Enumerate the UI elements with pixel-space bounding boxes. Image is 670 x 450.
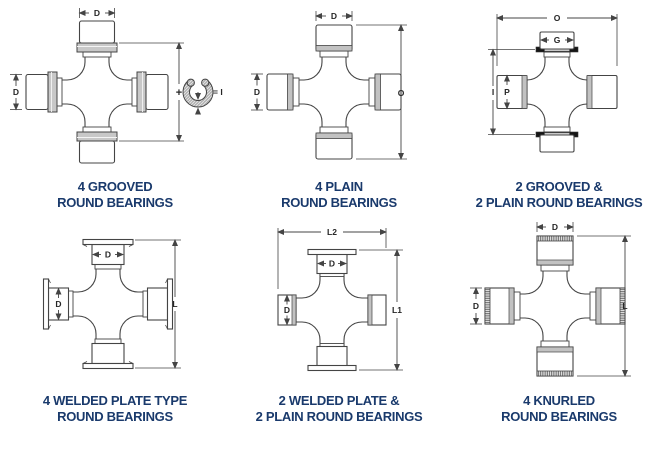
diagram-2-grooved-2-plain: O G I P 2 GROOVED & 2 PLAIN ROUND BEARIN… [448,4,670,210]
caption-line-2: 2 PLAIN ROUND BEARINGS [448,195,670,211]
dim-label-l2: L2 [327,227,337,237]
diagram-caption: 4 GROOVED ROUND BEARINGS [2,179,228,210]
diagram-caption: 2 WELDED PLATE & 2 PLAIN ROUND BEARINGS [228,393,450,424]
bearing-arm-left [26,72,62,112]
diagram-caption: 4 PLAIN ROUND BEARINGS [228,179,450,210]
dim-top-d: D [316,11,352,21]
caption-line-2: 2 PLAIN ROUND BEARINGS [228,409,450,425]
diagram-4-grooved: D D + = I 4 GROOVED ROUND BEARINGS [2,4,228,210]
caption-line-1: 2 GROOVED & [448,179,670,195]
dim-left-d: D [251,74,263,110]
dim-label-d-top: D [331,11,337,21]
u-joint-drawing-plain: D D O [229,4,449,172]
dim-label-i: I [492,87,494,97]
dim-label-o: O [554,13,561,23]
dim-label-p: P [504,87,510,97]
diagram-sheet: { "colors": { "caption": "#1a3a6c", "out… [0,0,670,450]
diagram-4-knurled: D D L 4 KNURLED ROUND BEARINGS [448,218,670,424]
bearing-arm-bottom [537,341,573,376]
u-joint-drawing-grooved-plain: O G I P [449,4,669,172]
bearing-arm-right [143,279,173,329]
dim-left-d: D [470,288,482,324]
u-joint-cross [485,236,625,376]
dim-label-d-top: D [329,259,335,269]
bearing-arm-right [590,288,625,324]
bearing-arm-right [132,72,168,112]
bearing-arm-left-plain [497,76,527,109]
bearing-arm-top [537,236,573,271]
dim-label-d-top: D [94,8,100,18]
diagram-caption: 4 KNURLED ROUND BEARINGS [448,393,670,424]
caption-line-1: 4 WELDED PLATE TYPE [2,393,228,409]
dim-label-plus: + [176,87,182,99]
dim-top-d: D [537,222,573,232]
u-joint-drawing-grooved: D D + = I [5,4,225,172]
diagram-2-welded-2-plain: L2 D D L1 2 WELDED PLATE & 2 PLAIN ROUND… [228,218,450,424]
snap-ring-icon [183,79,213,114]
dim-left-d: D [10,75,22,110]
bearing-arm-top [77,21,117,57]
u-joint-drawing-welded-plain: L2 D D L1 [229,218,449,386]
dim-label-d-left: D [13,87,19,97]
bearing-arm-right-plain [368,295,386,325]
diagram-4-welded-plate: D D L 4 WELDED PLATE TYPE ROUND BEARINGS [2,218,228,424]
bearing-arm-bottom [83,339,133,369]
caption-line-2: ROUND BEARINGS [2,195,228,211]
u-joint-drawing-knurled: D D L [449,218,669,386]
dim-label-equals-i: = I [213,87,223,97]
dim-label-d-left: D [55,299,61,309]
u-joint-cross [267,25,401,159]
caption-line-2: ROUND BEARINGS [2,409,228,425]
bearing-arm-right-plain [587,76,617,109]
caption-line-2: ROUND BEARINGS [228,195,450,211]
u-joint-cross [26,21,168,163]
bearing-arm-left [267,74,299,110]
u-joint-drawing-welded: D D L [5,218,225,386]
dim-label-l1: L1 [392,305,402,315]
dim-label-d-left: D [254,87,260,97]
bearing-arm-bottom-grooved [536,127,578,152]
bearing-arm-bottom [316,127,352,159]
dim-label-l: L [172,299,177,309]
diagram-caption: 2 GROOVED & 2 PLAIN ROUND BEARINGS [448,179,670,210]
dim-label-g: G [554,35,561,45]
caption-line-1: 4 KNURLED [448,393,670,409]
bearing-arm-left [485,288,520,324]
bearing-arm-bottom-welded [308,344,356,371]
dim-label-d-top: D [105,250,111,260]
dim-label-d-left: D [473,301,479,311]
diagram-4-plain: D D O 4 PLAIN ROUND BEARINGS [228,4,450,210]
dim-top-d: D [80,8,115,18]
u-joint-cross [497,32,617,152]
caption-line-2: ROUND BEARINGS [448,409,670,425]
caption-line-1: 4 PLAIN [228,179,450,195]
dim-label-d-left: D [284,305,290,315]
bearing-arm-top [316,25,352,57]
dim-label-o: O [398,88,405,98]
caption-line-1: 4 GROOVED [2,179,228,195]
caption-line-1: 2 WELDED PLATE & [228,393,450,409]
dim-label-l: L [622,301,627,311]
bearing-arm-right [369,74,401,110]
bearing-arm-bottom [77,127,117,163]
diagram-caption: 4 WELDED PLATE TYPE ROUND BEARINGS [2,393,228,424]
dim-label-d-top: D [552,222,558,232]
